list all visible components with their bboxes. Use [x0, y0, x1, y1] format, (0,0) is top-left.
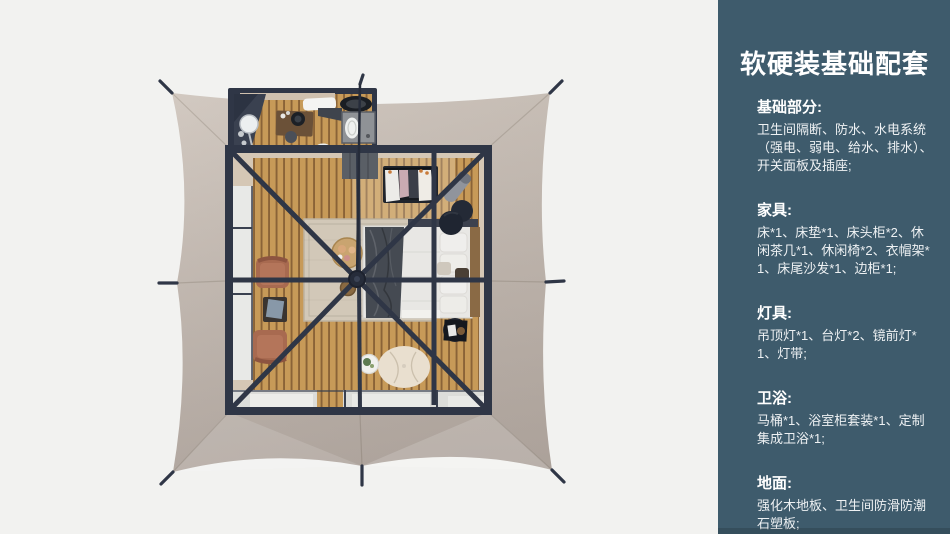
panel-title: 软硬装基础配套 — [740, 50, 950, 78]
section-body: 卫生间隔断、防水、水电系统（强电、弱电、给水、排水）、开关面板及插座; — [757, 121, 933, 175]
bathroom-basin — [340, 96, 372, 112]
clothes-rack — [383, 166, 438, 203]
section-heading: 地面: — [757, 474, 933, 493]
nightstand-tray-table — [443, 318, 468, 342]
section-heading: 卫浴: — [757, 389, 933, 408]
plant-table — [360, 355, 379, 374]
side-table — [263, 297, 287, 322]
garment-white-1 — [385, 170, 400, 202]
garment-dark — [408, 170, 419, 198]
info-panel: 软硬装基础配套 基础部分: 卫生间隔断、防水、水电系统（强电、弱电、给水、排水）… — [718, 0, 950, 534]
section-heading: 基础部分: — [757, 98, 933, 117]
bean-bag-pouf — [378, 346, 430, 388]
lounge-chair-1 — [256, 258, 289, 288]
panel-bottom-shade — [718, 528, 950, 534]
bathroom — [228, 88, 377, 149]
section-body: 吊顶灯*1、台灯*2、镜前灯*1、灯带; — [757, 327, 933, 363]
section-bathroom: 卫浴: 马桶*1、浴室柜套装*1、定制集成卫浴*1; — [757, 389, 933, 448]
section-heading: 家具: — [757, 201, 933, 220]
section-body: 马桶*1、浴室柜套装*1、定制集成卫浴*1; — [757, 412, 933, 448]
garment-white-2 — [418, 170, 433, 201]
section-basics: 基础部分: 卫生间隔断、防水、水电系统（强电、弱电、给水、排水）、开关面板及插座… — [757, 98, 933, 175]
section-body: 床*1、床垫*1、床头柜*2、休闲茶几*1、休闲椅*2、衣帽架*1、床尾沙发*1… — [757, 224, 933, 278]
section-flooring: 地面: 强化木地板、卫生间防滑防潮石塑板; — [757, 474, 933, 533]
left-window — [230, 186, 252, 380]
section-furniture: 家具: 床*1、床垫*1、床头柜*2、休闲茶几*1、休闲椅*2、衣帽架*1、床尾… — [757, 201, 933, 278]
bed-headboard — [470, 227, 480, 317]
section-heading: 灯具: — [757, 304, 933, 323]
section-lighting: 灯具: 吊顶灯*1、台灯*2、镜前灯*1、灯带; — [757, 304, 933, 363]
